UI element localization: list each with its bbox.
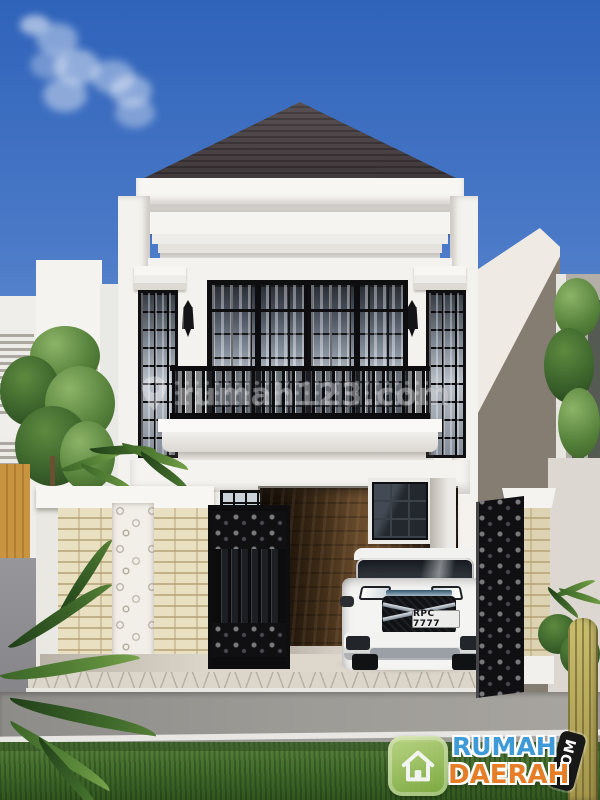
house-render-scene: RPC 7777 rumah123.com (0, 0, 600, 800)
palm-frond (0, 641, 140, 692)
cornice (146, 212, 454, 234)
house-icon (398, 746, 438, 786)
driveway-gate-open-panel (476, 496, 524, 698)
gate-ornate-bottom (212, 623, 286, 657)
brand-logo: .COM RUMAH DAERAH (386, 724, 596, 800)
lamp-cap (184, 300, 192, 307)
lamp-body (182, 307, 194, 329)
first-floor-window (368, 478, 432, 544)
neighbor-wood-door (0, 464, 30, 568)
logo-word-bottom: DAERAH (448, 762, 569, 788)
license-plate-text: RPC 7777 (413, 609, 459, 629)
tree-right (544, 278, 600, 488)
roof-fascia (136, 178, 464, 204)
watermark-text: rumah123.com (178, 377, 451, 413)
palm-frond (8, 573, 112, 659)
tree-foliage (558, 388, 600, 458)
balcony-floor-edge (158, 419, 442, 432)
logo-word-top: RUMAH (452, 734, 557, 759)
car-foglight-left (346, 636, 370, 650)
photo-watermark: rumah123.com (138, 372, 488, 418)
pier-capital-left (134, 266, 186, 290)
cloud (20, 15, 50, 35)
location-pin-icon (138, 375, 170, 415)
balcony-molding (162, 432, 438, 452)
lamp-cap (408, 300, 416, 307)
license-plate: RPC 7777 (412, 610, 460, 628)
suv: RPC 7777 (340, 548, 490, 674)
window-glass (372, 482, 428, 540)
cornice-step (158, 244, 442, 253)
gate-bars (218, 549, 280, 623)
car-wheel-left (352, 654, 378, 670)
car-mirror-left (340, 596, 354, 607)
car-skid-plate (370, 648, 460, 658)
car-wheel-right (452, 654, 478, 670)
lamp-finial (409, 329, 415, 337)
wall-lamp-left (180, 300, 196, 338)
lamp-finial (185, 329, 191, 337)
palm-frond (3, 721, 116, 791)
cornice-shadow-band (150, 204, 450, 212)
cornice-step (152, 234, 448, 244)
gate-ornate-top (212, 511, 286, 549)
pedestrian-gate (208, 505, 290, 669)
logo-house-badge (388, 736, 448, 796)
palm-left-foreground (0, 570, 175, 800)
palm-frond (30, 737, 111, 800)
pier-capital-right (414, 266, 466, 290)
